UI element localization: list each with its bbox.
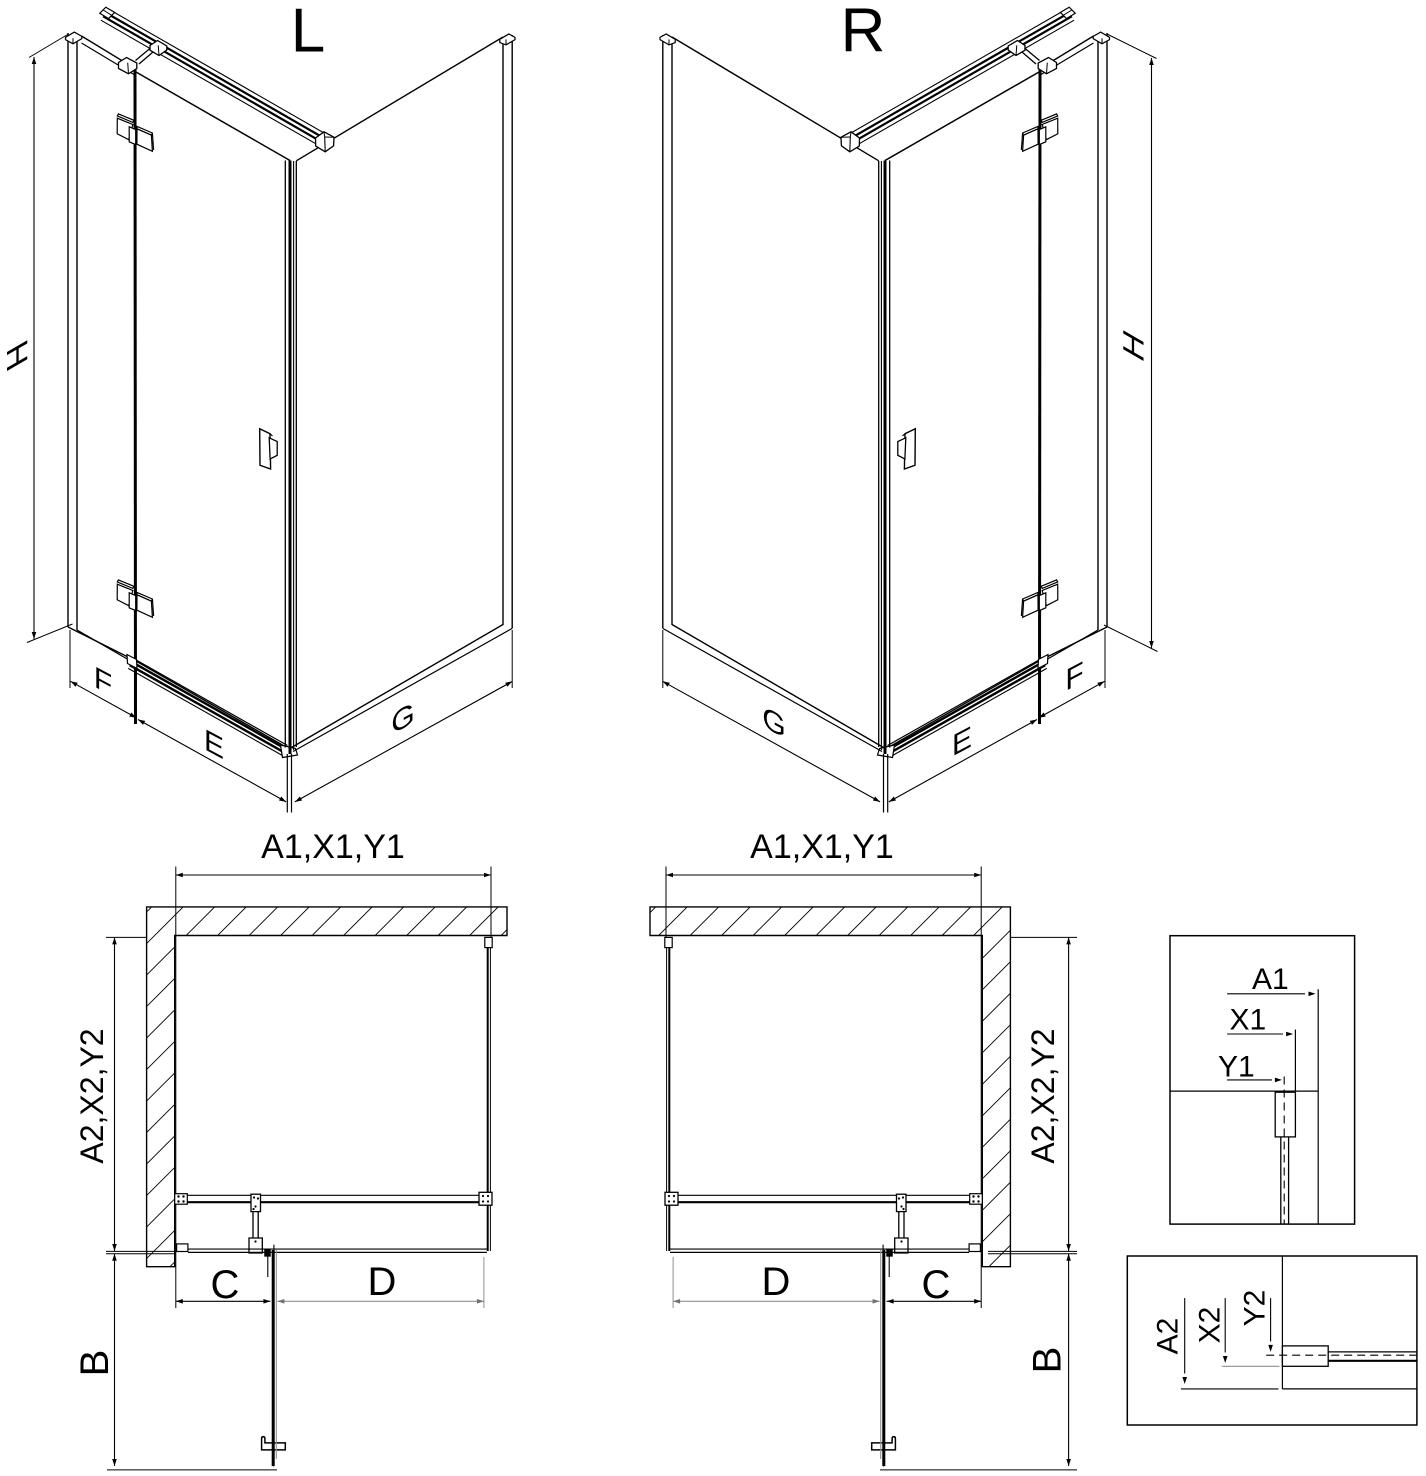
svg-text:C: C xyxy=(922,1263,951,1307)
svg-text:R: R xyxy=(841,0,886,66)
svg-text:D: D xyxy=(368,1260,397,1304)
svg-text:L: L xyxy=(291,0,325,66)
svg-text:B: B xyxy=(1026,1347,1070,1374)
svg-text:X1: X1 xyxy=(1230,1004,1267,1037)
svg-text:A1,X1,Y1: A1,X1,Y1 xyxy=(261,828,405,866)
svg-text:C: C xyxy=(211,1263,240,1307)
svg-text:X2: X2 xyxy=(1194,1307,1227,1344)
svg-text:A1,X1,Y1: A1,X1,Y1 xyxy=(750,828,894,866)
svg-text:D: D xyxy=(762,1260,791,1304)
svg-text:B: B xyxy=(73,1350,117,1377)
svg-text:A2,X2,Y2: A2,X2,Y2 xyxy=(74,1028,110,1163)
svg-text:Y2: Y2 xyxy=(1239,1290,1272,1327)
svg-text:Y1: Y1 xyxy=(1218,1051,1255,1084)
svg-text:A2: A2 xyxy=(1152,1318,1185,1355)
svg-text:A1: A1 xyxy=(1252,963,1289,996)
svg-text:A2,X2,Y2: A2,X2,Y2 xyxy=(1025,1028,1061,1163)
